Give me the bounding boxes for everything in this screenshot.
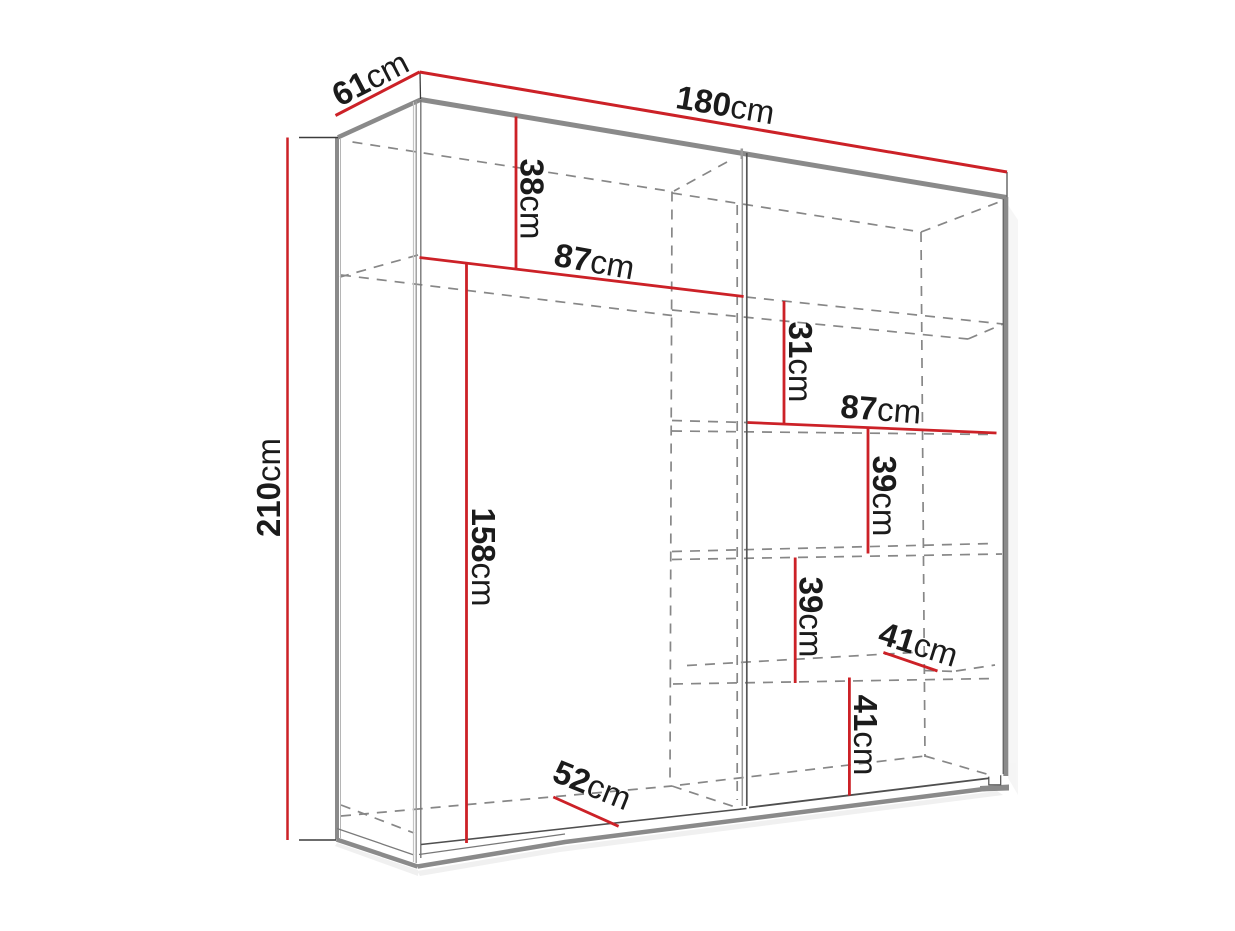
svg-text:39cm: 39cm	[866, 456, 903, 537]
svg-text:39cm: 39cm	[793, 577, 830, 658]
svg-text:31cm: 31cm	[782, 322, 819, 403]
svg-text:87cm: 87cm	[839, 387, 922, 430]
svg-text:41cm: 41cm	[847, 695, 884, 776]
svg-text:210cm: 210cm	[250, 438, 287, 537]
svg-text:38cm: 38cm	[514, 159, 551, 240]
svg-text:158cm: 158cm	[465, 507, 502, 606]
